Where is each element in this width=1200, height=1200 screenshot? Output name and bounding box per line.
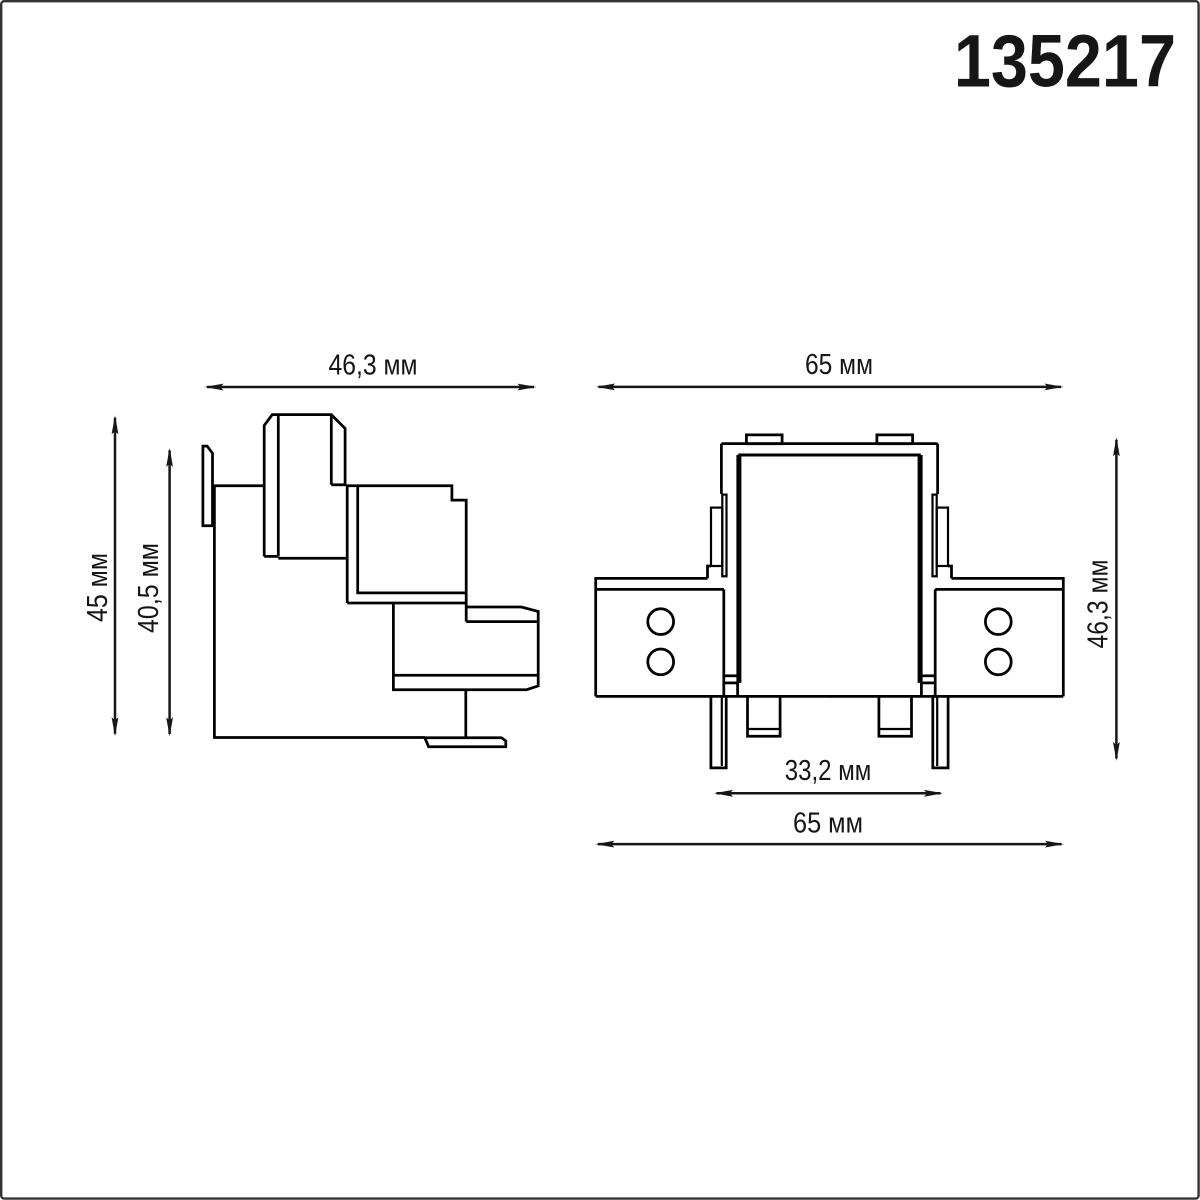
svg-text:65 мм: 65 мм bbox=[805, 349, 873, 381]
svg-text:46,3 мм: 46,3 мм bbox=[329, 350, 418, 382]
svg-text:135217: 135217 bbox=[954, 19, 1176, 102]
svg-text:33,2 мм: 33,2 мм bbox=[785, 755, 872, 787]
svg-text:46,3 мм: 46,3 мм bbox=[1083, 560, 1115, 649]
svg-text:45 мм: 45 мм bbox=[82, 553, 114, 622]
svg-text:40,5 мм: 40,5 мм bbox=[133, 543, 165, 633]
svg-text:65 мм: 65 мм bbox=[793, 807, 863, 839]
